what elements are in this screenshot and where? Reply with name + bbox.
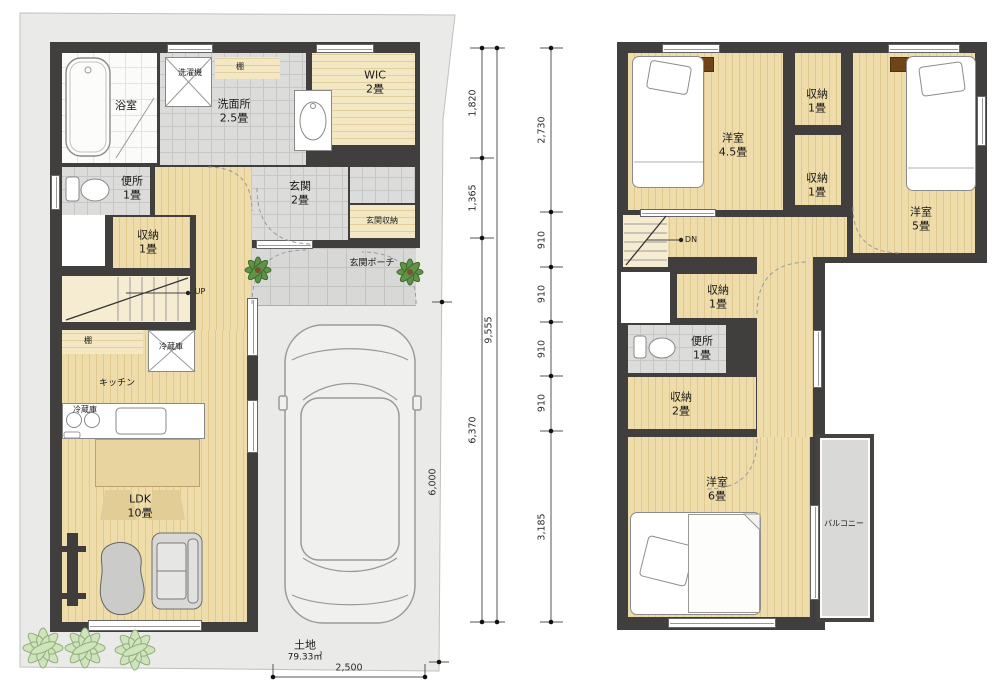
kitchen-shelf: [62, 330, 143, 354]
window-bedroom6-bottom: [668, 618, 776, 628]
dim-910-2: 910: [537, 285, 548, 303]
dim-3185: 3,185: [537, 513, 548, 540]
window-washroom-top: [167, 44, 213, 53]
dim-2730: 2,730: [537, 116, 548, 143]
label-ldk: LDK10畳: [128, 492, 153, 520]
label-bedroom-45: 洋室4.5畳: [719, 131, 748, 159]
stairs-2f: [623, 215, 668, 267]
label-closet-d: 収納2畳: [670, 390, 692, 418]
label-wic: WIC2畳: [364, 68, 386, 96]
label-shelf-top: 棚: [236, 62, 244, 72]
hall-1f-corridor: [196, 167, 252, 330]
window-ldk-right-2: [247, 400, 258, 453]
window-bedroom45-bottom: [640, 209, 716, 217]
dim-910-3: 910: [537, 340, 548, 358]
window-hall2f-right: [813, 330, 822, 388]
car-mirror-left: [279, 396, 287, 410]
dim-6370: 6,370: [468, 416, 479, 443]
car: [279, 325, 421, 623]
dim-1365: 1,365: [468, 184, 479, 211]
room-bathroom: [62, 53, 157, 163]
vanity-unit: [294, 90, 332, 151]
label-porch: 玄関ポーチ: [349, 258, 394, 269]
plant-1: [23, 628, 63, 668]
entrance-door: [256, 240, 313, 249]
label-kitchen-shelf: 棚: [84, 336, 92, 346]
label-dn: DN: [685, 235, 697, 245]
blanket-double-bed: [688, 514, 760, 613]
label-closet-c: 収納1畳: [707, 283, 729, 311]
window-ldk-right-1: [247, 298, 258, 356]
dim-2500: 2,500: [335, 663, 362, 674]
room-closet-d: [628, 377, 756, 429]
window-toilet-left: [51, 175, 60, 210]
washing-machine: [165, 57, 212, 107]
pillow-2: [918, 61, 966, 97]
label-bedroom-6: 洋室6畳: [706, 475, 728, 503]
window-bedroom45-top: [662, 44, 720, 53]
label-up: UP: [195, 287, 206, 297]
label-counter-fridge: 冷蔵庫: [73, 405, 97, 415]
label-toilet-2f: 便所1畳: [691, 334, 713, 362]
window-ldk-bottom: [88, 620, 202, 631]
label-closet-a: 収納1畳: [806, 87, 828, 115]
hall-2f-corridor: [757, 217, 813, 437]
window-bedroom5-right: [977, 96, 986, 146]
label-bathroom: 浴室: [115, 99, 137, 113]
plant-3: [115, 630, 155, 670]
dim-1820: 1,820: [468, 89, 479, 116]
understair-void: [62, 215, 105, 266]
label-entrance-storage: 玄関収納: [366, 216, 398, 226]
entrance-porch: [252, 248, 416, 306]
label-entrance: 玄関2畳: [289, 179, 311, 207]
stairwell-void-2f: [621, 272, 670, 323]
window-wic-top: [316, 44, 374, 53]
stool-2: [148, 490, 185, 520]
entrance-hall-right: [350, 167, 415, 203]
car-mirror-right: [413, 396, 421, 410]
stairs-1f: [62, 276, 190, 322]
label-toilet-1f: 便所1畳: [121, 174, 143, 202]
label-fridge: 冷蔵庫: [159, 342, 183, 352]
washroom-shelf: [215, 57, 280, 79]
label-closet-b: 収納1畳: [806, 171, 828, 199]
kitchen-island-table: [95, 439, 200, 487]
label-washing-machine: 洗濯機: [178, 68, 202, 78]
label-washroom: 洗面所2.5畳: [218, 97, 251, 125]
label-closet-1f: 収納1畳: [137, 228, 159, 256]
label-bedroom-5: 洋室5畳: [910, 205, 932, 233]
floorplan-canvas: 浴室 洗濯機 棚 洗面所2.5畳 WIC2畳 便所1畳 玄関2畳 玄関収納 収納…: [0, 0, 1000, 693]
dim-910-1: 910: [537, 231, 548, 249]
balcony-door: [810, 505, 819, 600]
label-lot: 土地79.33㎡: [288, 639, 323, 664]
label-kitchen: キッチン: [99, 378, 135, 389]
dim-6000: 6,000: [428, 468, 439, 495]
label-balcony: バルコニー: [824, 519, 864, 529]
hall-1f-front-toilet: [155, 167, 196, 215]
window-bedroom5-top: [888, 44, 960, 53]
dim-910-4: 910: [537, 394, 548, 412]
dim-9555: 9,555: [484, 316, 495, 343]
plant-2: [65, 628, 105, 668]
